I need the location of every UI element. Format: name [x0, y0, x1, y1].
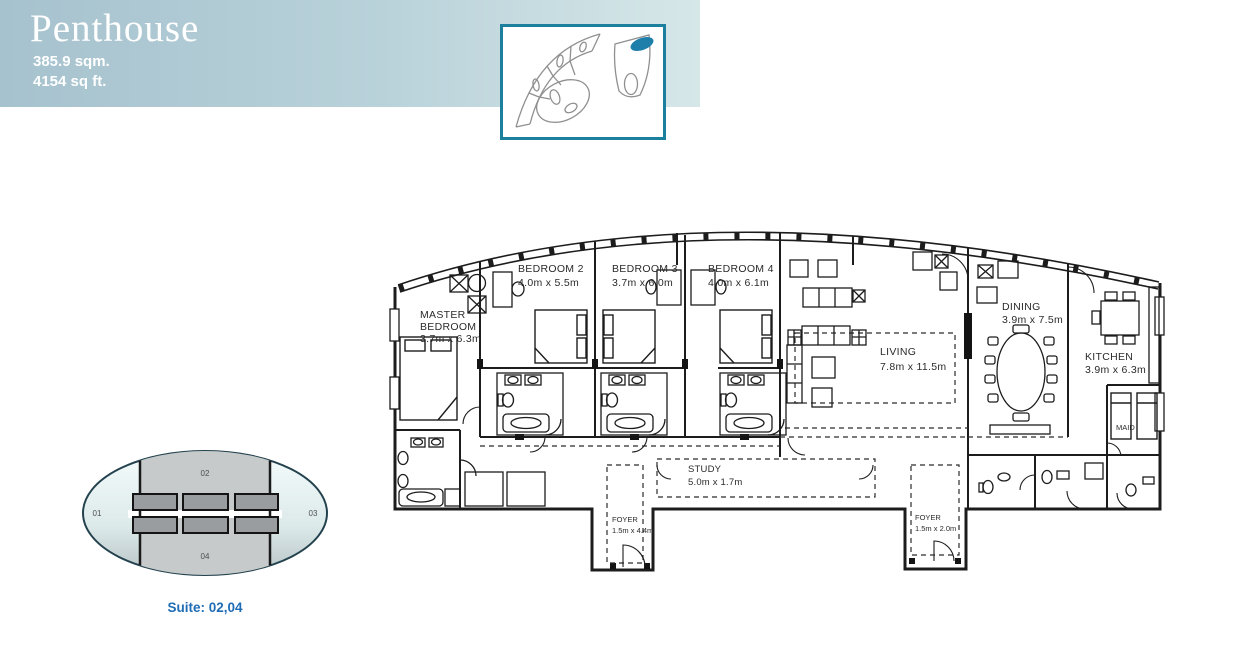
svg-text:1.5m x 4.4m: 1.5m x 4.4m [612, 526, 653, 535]
keyplan-label-01: 01 [93, 509, 102, 518]
master-bathroom [398, 438, 476, 506]
site-thumbnail-sketch [503, 27, 663, 137]
room-label-foyer-service: FOYER [915, 513, 941, 522]
keyplan-label-04: 04 [201, 552, 210, 561]
svg-text:4.0m x 5.5m: 4.0m x 5.5m [518, 277, 579, 289]
keyplan: 01 02 03 04 Suite: 02,04 [70, 440, 340, 625]
room-label-living: LIVING [880, 346, 916, 358]
room-dims-master: 3.7m x 6.3m [420, 333, 481, 345]
bed-2 [535, 310, 587, 363]
keyplan-label-03: 03 [309, 509, 318, 518]
room-label-maid: MAID [1116, 423, 1135, 432]
svg-text:3.9m x 7.5m: 3.9m x 7.5m [1002, 314, 1063, 326]
room-label-master: MASTER [420, 309, 466, 321]
svg-text:BEDROOM: BEDROOM [420, 321, 476, 333]
site-thumbnail [500, 24, 666, 140]
room-label-bedroom4: BEDROOM 4 [708, 263, 774, 275]
bed-4 [720, 310, 772, 363]
svg-text:3.7m x 6.0m: 3.7m x 6.0m [612, 277, 673, 289]
page-title: Penthouse [30, 6, 199, 51]
master-bed [400, 337, 457, 420]
area-imperial: 4154 sq ft. [33, 72, 110, 92]
area-metric: 385.9 sqm. [33, 52, 110, 72]
room-label-bedroom2: BEDROOM 2 [518, 263, 584, 275]
room-label-foyer-main: FOYER [612, 515, 638, 524]
svg-text:7.8m x 11.5m: 7.8m x 11.5m [880, 361, 946, 373]
svg-text:1.5m x 2.0m: 1.5m x 2.0m [915, 524, 956, 533]
site-oval-tower [529, 71, 596, 131]
floorplan: MASTER BEDROOM 3.7m x 6.3m BEDROOM 2 4.0… [385, 225, 1185, 580]
maid-beds [1111, 393, 1157, 439]
room-label-bedroom3: BEDROOM 3 [612, 263, 678, 275]
keyplan-label-02: 02 [201, 469, 210, 478]
site-arc-outer [516, 34, 600, 127]
dining-table [985, 325, 1057, 421]
svg-text:4.0m x 6.1m: 4.0m x 6.1m [708, 277, 769, 289]
room-label-dining: DINING [1002, 301, 1041, 313]
area-block: 385.9 sqm. 4154 sq ft. [33, 52, 110, 92]
svg-text:3.9m x 6.3m: 3.9m x 6.3m [1085, 364, 1146, 376]
bed-3 [603, 310, 655, 363]
svg-text:5.0m x 1.7m: 5.0m x 1.7m [688, 477, 742, 488]
room-label-kitchen: KITCHEN [1085, 351, 1133, 363]
room-label-study: STUDY [688, 464, 722, 475]
room-labels: MASTER BEDROOM 3.7m x 6.3m BEDROOM 2 4.0… [420, 263, 1146, 535]
outer-walls [395, 232, 1160, 570]
page: Penthouse 385.9 sqm. 4154 sq ft. [0, 0, 1257, 661]
suite-caption: Suite: 02,04 [167, 600, 243, 615]
foyer-main-zone [607, 465, 643, 563]
